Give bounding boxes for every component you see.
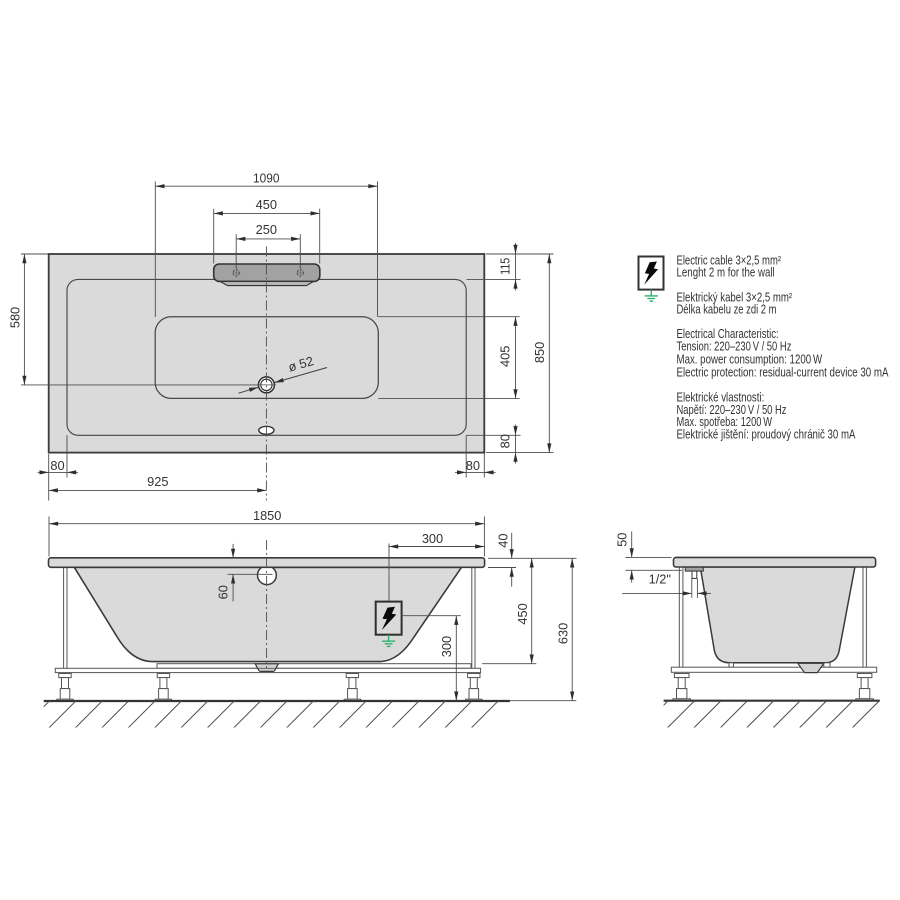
svg-text:115: 115: [498, 258, 513, 275]
svg-text:1/2": 1/2": [649, 572, 671, 587]
svg-text:450: 450: [515, 603, 530, 624]
svg-text:1090: 1090: [253, 171, 280, 186]
svg-text:925: 925: [147, 474, 168, 489]
svg-text:Délka kabelu ze zdi 2 m: Délka kabelu ze zdi 2 m: [677, 302, 777, 316]
svg-text:300: 300: [422, 531, 443, 546]
svg-text:630: 630: [556, 623, 571, 644]
svg-text:405: 405: [498, 346, 513, 367]
svg-text:Elektrické jištění: proudový c: Elektrické jištění: proudový chránič 30 …: [677, 428, 856, 442]
svg-text:450: 450: [256, 197, 277, 212]
svg-text:40: 40: [495, 533, 510, 547]
svg-text:80: 80: [50, 458, 64, 473]
svg-text:1850: 1850: [253, 508, 281, 523]
svg-text:80: 80: [498, 434, 513, 448]
svg-text:80: 80: [466, 458, 480, 473]
svg-text:850: 850: [532, 342, 547, 363]
svg-text:Electric protection: residual-: Electric protection: residual-current de…: [677, 365, 890, 379]
svg-text:Lenght 2 m for the wall: Lenght 2 m for the wall: [677, 266, 775, 280]
svg-text:580: 580: [8, 307, 23, 328]
svg-text:60: 60: [216, 585, 231, 599]
svg-text:300: 300: [439, 636, 454, 657]
svg-text:50: 50: [614, 533, 629, 547]
svg-text:250: 250: [256, 222, 277, 237]
